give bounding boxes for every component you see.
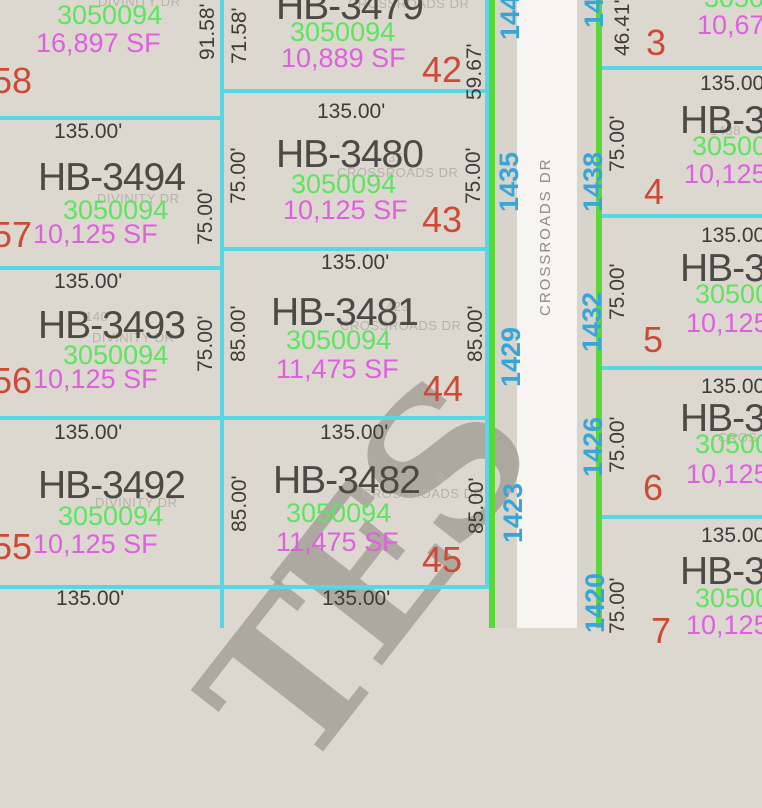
parcel-area: 11,475 SF — [276, 355, 399, 383]
parcel-apn: 3050094 — [58, 502, 163, 530]
address-label: 144 — [496, 0, 524, 40]
lot-number: 45 — [422, 541, 462, 579]
boundary-line — [0, 416, 492, 420]
parcel-area: 10,125 — [686, 460, 762, 488]
dimension-label: 85.00' — [229, 475, 251, 532]
parcel-area: 10,125 — [686, 309, 762, 337]
boundary-line — [602, 66, 762, 70]
parcel-area: 10,125 — [684, 160, 762, 188]
dimension-label: 135.00' — [54, 271, 122, 293]
parcel-area: 10,125 SF — [33, 365, 158, 393]
address-label: 1438 — [579, 152, 607, 212]
dimension-label: 85.00' — [228, 305, 250, 362]
dimension-label: 91.58' — [197, 3, 219, 60]
parcel-area: 10,125 SF — [33, 530, 158, 558]
dimension-label: 85.00' — [465, 305, 487, 362]
lot-number: 3 — [646, 24, 666, 62]
dimension-label: 59.67' — [464, 43, 486, 100]
dimension-label: 135.00' — [54, 422, 122, 444]
parcel-area: 10,889 SF — [281, 44, 406, 72]
dimension-label: 75.00' — [607, 577, 629, 634]
boundary-line — [220, 0, 224, 628]
parcel-apn: 3050094 — [57, 1, 162, 29]
boundary-line — [602, 515, 762, 519]
ghost-address-label: 3 — [437, 471, 445, 485]
address-label: 1435 — [495, 152, 523, 212]
address-label: 1429 — [497, 327, 525, 387]
parcel-id: HB-3482 — [273, 461, 420, 502]
parcel-area: 10,125 — [686, 611, 762, 639]
address-label: 1426 — [579, 417, 607, 477]
dimension-label: 135.00' — [322, 588, 390, 610]
parcel-apn: 30500 — [695, 280, 762, 308]
parcel-area: 10,125 SF — [33, 220, 158, 248]
parcel-apn: 30500 — [695, 584, 762, 612]
parcel-apn: 3050094 — [286, 326, 391, 354]
boundary-line — [602, 214, 762, 218]
dimension-label: 135.00 — [701, 225, 762, 247]
parcel-id: HB-3494 — [38, 158, 185, 199]
lot-number: 7 — [651, 612, 671, 650]
lot-number: 55 — [0, 528, 32, 566]
lot-number: 44 — [423, 370, 463, 408]
dimension-label: 135.00 — [700, 73, 762, 95]
dimension-label: 135.00' — [54, 121, 122, 143]
dimension-label: 135.00 — [701, 525, 762, 547]
lot-number: 58 — [0, 62, 32, 100]
parcel-area: 10,67 — [697, 11, 762, 39]
dimension-label: 75.00' — [607, 263, 629, 320]
lot-number: 6 — [643, 469, 663, 507]
lot-number: 42 — [422, 51, 462, 89]
lot-number: 56 — [0, 362, 32, 400]
parcel-apn: 30500 — [695, 430, 762, 458]
street-name-label: CROSSROADS DR — [538, 157, 554, 316]
dimension-label: 75.00' — [607, 115, 629, 172]
plat-map: { "map_title": "Crossroads Dr plat map",… — [0, 0, 762, 628]
address-label: 1432 — [578, 292, 606, 352]
parcel-area: 10,125 SF — [283, 196, 408, 224]
address-label: 144 — [580, 0, 608, 28]
dimension-label: 75.00' — [607, 416, 629, 473]
parcel-apn: 3050094 — [286, 499, 391, 527]
lot-number: 4 — [644, 173, 664, 211]
dimension-label: 71.58' — [229, 7, 251, 64]
dimension-label: 75.00' — [228, 147, 250, 204]
dimension-label: 135.00' — [317, 101, 385, 123]
boundary-line — [602, 366, 762, 370]
dimension-label: 46.41' — [612, 0, 634, 56]
lot-number: 5 — [643, 321, 663, 359]
parcel-area: 11,475 SF — [276, 528, 399, 556]
parcel-area: 16,897 SF — [36, 29, 161, 57]
dimension-label: 135.00' — [56, 588, 124, 610]
lot-number: 57 — [0, 216, 32, 254]
dimension-label: 75.00' — [195, 188, 217, 245]
dimension-label: 75.00' — [195, 315, 217, 372]
dimension-label: 135.00' — [321, 252, 389, 274]
address-label: 1423 — [499, 483, 527, 543]
parcel-apn: 30500 — [692, 132, 762, 160]
dimension-label: 85.00' — [466, 477, 488, 534]
dimension-label: 135.00 — [701, 376, 762, 398]
dimension-label: 135.00' — [320, 422, 388, 444]
road-edge-line — [489, 0, 495, 628]
dimension-label: 75.00' — [463, 147, 485, 204]
lot-number: 43 — [422, 201, 462, 239]
